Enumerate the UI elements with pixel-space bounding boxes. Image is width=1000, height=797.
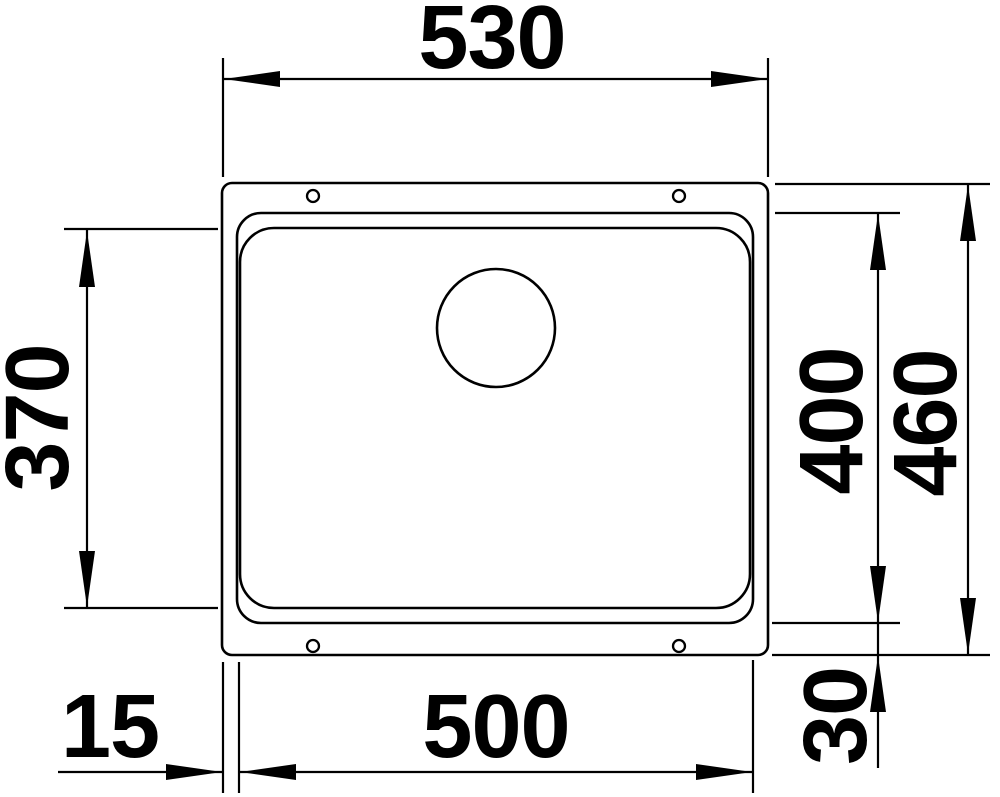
dimension-left-inner-height: 370 (0, 229, 218, 608)
dimension-bottom-inner-width: 500 (240, 660, 753, 793)
arrowhead-up-icon (79, 231, 95, 287)
arrowhead-right-icon (711, 71, 767, 87)
mounting-hole-bottom-left (307, 640, 319, 652)
dimension-label-500: 500 (422, 677, 569, 777)
arrowhead-left-icon (224, 71, 280, 87)
drain-hole-circle (437, 269, 555, 387)
dimension-label-370: 370 (0, 344, 88, 491)
arrowhead-up-icon (960, 185, 976, 241)
drawing-canvas: 530 370 400 460 (0, 0, 1000, 797)
dimension-bottom-right-offset: 30 (786, 623, 886, 768)
arrowhead-left-icon (240, 764, 296, 780)
sink-top-view (222, 183, 768, 655)
dimension-label-15: 15 (61, 677, 159, 777)
arrowhead-up-icon (870, 214, 886, 270)
mounting-hole-top-left (307, 190, 319, 202)
arrowhead-right-icon (166, 764, 222, 780)
dimension-label-460: 460 (876, 349, 976, 496)
arrowhead-down-icon (960, 598, 976, 654)
mounting-hole-top-right (673, 190, 685, 202)
dimension-label-400: 400 (782, 347, 882, 494)
dimension-label-30: 30 (786, 667, 886, 765)
arrowhead-down-icon (79, 551, 95, 607)
arrowhead-down-icon (870, 566, 886, 622)
dimension-label-530: 530 (418, 0, 565, 88)
dimension-bottom-left-offset: 15 (58, 662, 239, 793)
arrowhead-right-icon (696, 764, 752, 780)
dimension-top-width: 530 (223, 0, 768, 177)
sink-dimension-drawing: 530 370 400 460 (0, 0, 1000, 797)
mounting-hole-bottom-right (673, 640, 685, 652)
